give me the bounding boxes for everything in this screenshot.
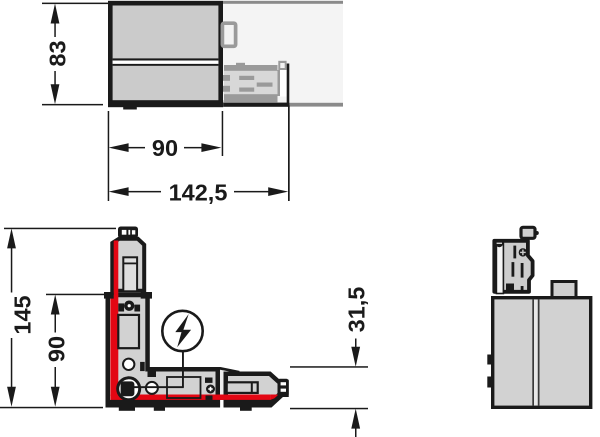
svg-text:145: 145 [10, 295, 36, 334]
svg-text:142,5: 142,5 [169, 179, 228, 205]
svg-text:31,5: 31,5 [344, 287, 370, 333]
svg-text:83: 83 [44, 40, 70, 66]
svg-text:90: 90 [152, 135, 178, 161]
svg-text:90: 90 [44, 336, 70, 362]
